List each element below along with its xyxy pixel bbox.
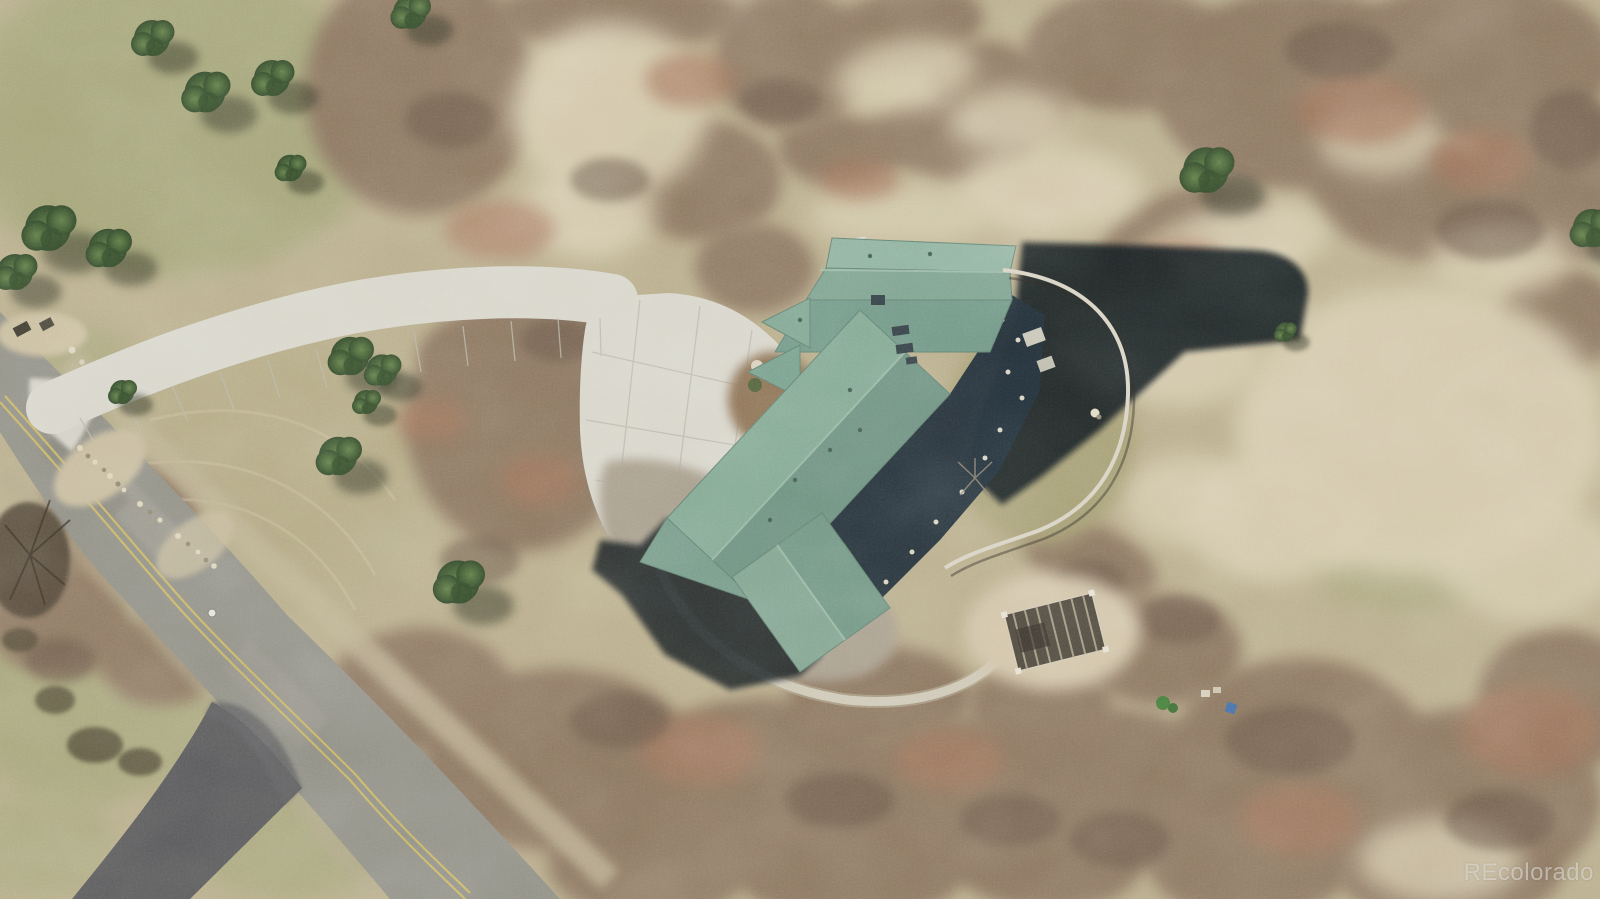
warm-cast xyxy=(0,0,1600,899)
watermark-text: REcolorado xyxy=(1464,859,1594,887)
aerial-photo: REcolorado xyxy=(0,0,1600,899)
aerial-photo-canvas xyxy=(0,0,1600,899)
